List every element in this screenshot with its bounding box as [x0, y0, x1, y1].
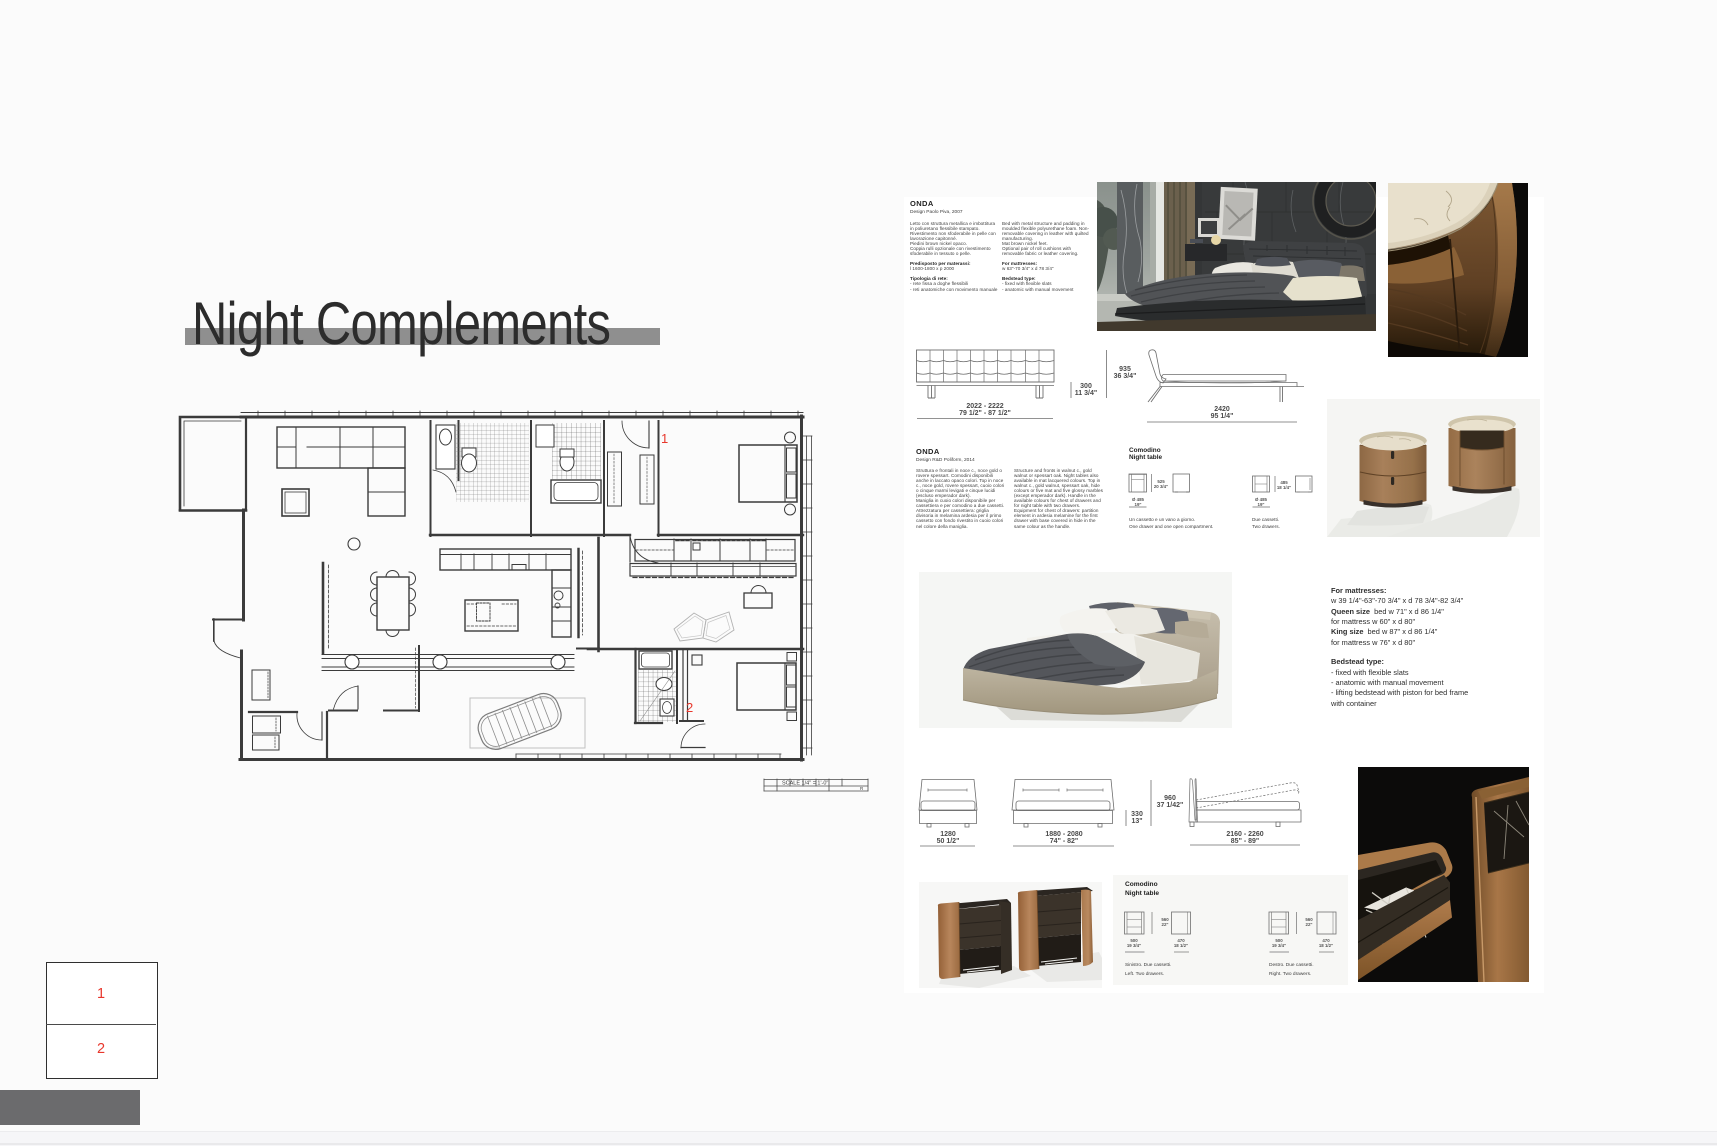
svg-text:2: 2: [686, 700, 693, 715]
svg-text:1: 1: [661, 431, 668, 446]
svg-text:R: R: [860, 786, 864, 791]
svg-text:SCALE 1/4" = 1'-0": SCALE 1/4" = 1'-0": [782, 781, 828, 787]
